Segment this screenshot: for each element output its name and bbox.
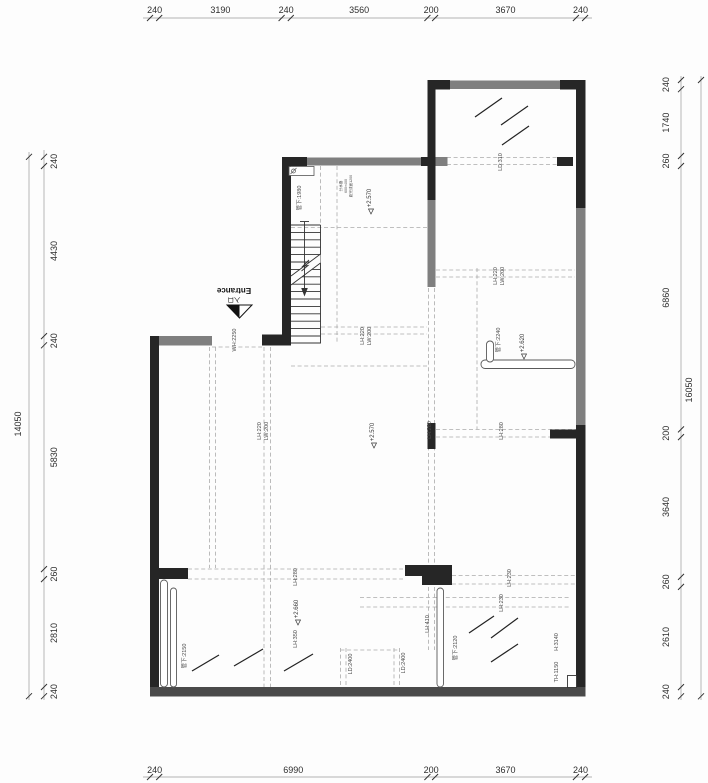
- railing-post: [487, 341, 494, 362]
- beam-ld310: LD:310: [498, 153, 504, 171]
- manifold-note-l1: 分水器: [338, 180, 343, 191]
- dim-bottom-0: 240: [147, 765, 162, 775]
- riser-pipe-left-b: [171, 588, 177, 687]
- pipe-note-left: 管下:2150: [180, 644, 188, 669]
- beam-low-right-lh-a: LH:230: [507, 569, 513, 587]
- dim-bottom-2: 200: [424, 765, 439, 775]
- dim-top-3: 3560: [349, 5, 369, 15]
- dim-left-1: 4430: [49, 241, 59, 261]
- floor-plan-canvas: Entrance 入口 WH:2250 管下:1980 分水器 600×400 …: [0, 0, 708, 783]
- dim-right-3: 6860: [661, 288, 671, 308]
- dim-top-0: 240: [147, 5, 162, 15]
- riser-pipe-left-a: [161, 580, 168, 687]
- dim-left-2: 240: [49, 333, 59, 348]
- svg-text:+2.570: +2.570: [370, 422, 376, 441]
- dim-top-6: 240: [573, 5, 588, 15]
- sill-symbol: [568, 676, 577, 688]
- svg-text:+2.660: +2.660: [294, 599, 300, 618]
- beam-right-lh: LH:220: [493, 267, 499, 285]
- beam-mid-lh-a: LH:280: [427, 421, 433, 439]
- dim-bottom-4: 240: [573, 765, 588, 775]
- beam-right-lw: LW:200: [500, 267, 506, 285]
- beam-lh410: LH:410: [425, 615, 431, 633]
- railing-horizontal: [481, 360, 575, 369]
- dim-bottom-1: 6990: [283, 765, 303, 775]
- dim-right-total: 16050: [684, 377, 694, 402]
- beam-ld2400-a: LD:2400: [348, 654, 354, 675]
- beam-stair-lh: LH:220: [360, 327, 366, 345]
- entrance-label-en: Entrance: [216, 286, 251, 295]
- dim-left-0: 240: [49, 154, 59, 169]
- dim-left-5: 2810: [49, 623, 59, 643]
- dim-right-1: 1740: [661, 113, 671, 133]
- dim-top-4: 200: [424, 5, 439, 15]
- entrance-opening-height: WH:2250: [232, 329, 238, 352]
- dim-right-4: 200: [661, 426, 671, 441]
- beam-hall-lh: LH:220: [257, 422, 263, 440]
- dim-right-8: 240: [661, 684, 671, 699]
- pipe-note-rail: 管下:2240: [494, 328, 502, 353]
- dim-right-2: 260: [661, 153, 671, 168]
- manifold-note-l2: 600×400: [344, 179, 348, 193]
- svg-text:+2.570: +2.570: [367, 188, 373, 207]
- beam-stair-lw: LW:200: [367, 327, 373, 345]
- dim-bottom-3: 3670: [495, 765, 515, 775]
- beam-hall-lw: LW:200: [264, 422, 270, 440]
- riser-pipe-center: [437, 588, 444, 687]
- dim-right-7: 2610: [661, 627, 671, 647]
- svg-text:+2.620: +2.620: [520, 333, 526, 352]
- entrance-label-zh: 入口: [228, 296, 241, 304]
- dim-right-6: 260: [661, 574, 671, 589]
- manifold-note-l3: 距完成面1200: [348, 175, 353, 197]
- dim-top-2: 240: [279, 5, 294, 15]
- beam-low-left-lh2: LH:350: [293, 630, 299, 648]
- paper-background: [0, 0, 708, 783]
- dim-right-5: 3640: [661, 497, 671, 517]
- dim-top-1: 3190: [210, 5, 230, 15]
- beam-mid-lh-b: LH:280: [499, 422, 505, 440]
- beam-low-right-lh-b: LH:230: [499, 594, 505, 612]
- dim-top-5: 3670: [495, 5, 515, 15]
- beam-low-left-lh: LH:280: [293, 568, 299, 586]
- bottom-wall: [150, 687, 586, 697]
- pipe-note-mid: 管下:2120: [451, 636, 459, 661]
- dim-left-6: 240: [49, 684, 59, 699]
- dim-right-0: 240: [661, 77, 671, 92]
- dim-left-3: 5830: [49, 447, 59, 467]
- beam-ld2400-b: LD:2400: [401, 653, 407, 674]
- pipe-note-stair: 管下:1980: [295, 186, 303, 211]
- height-h3140: H:3140: [554, 633, 560, 651]
- dim-left-total: 14050: [13, 411, 23, 436]
- height-th1150: TH:1150: [554, 662, 560, 683]
- niche-symbol: [289, 167, 314, 176]
- dim-left-4: 260: [49, 567, 59, 582]
